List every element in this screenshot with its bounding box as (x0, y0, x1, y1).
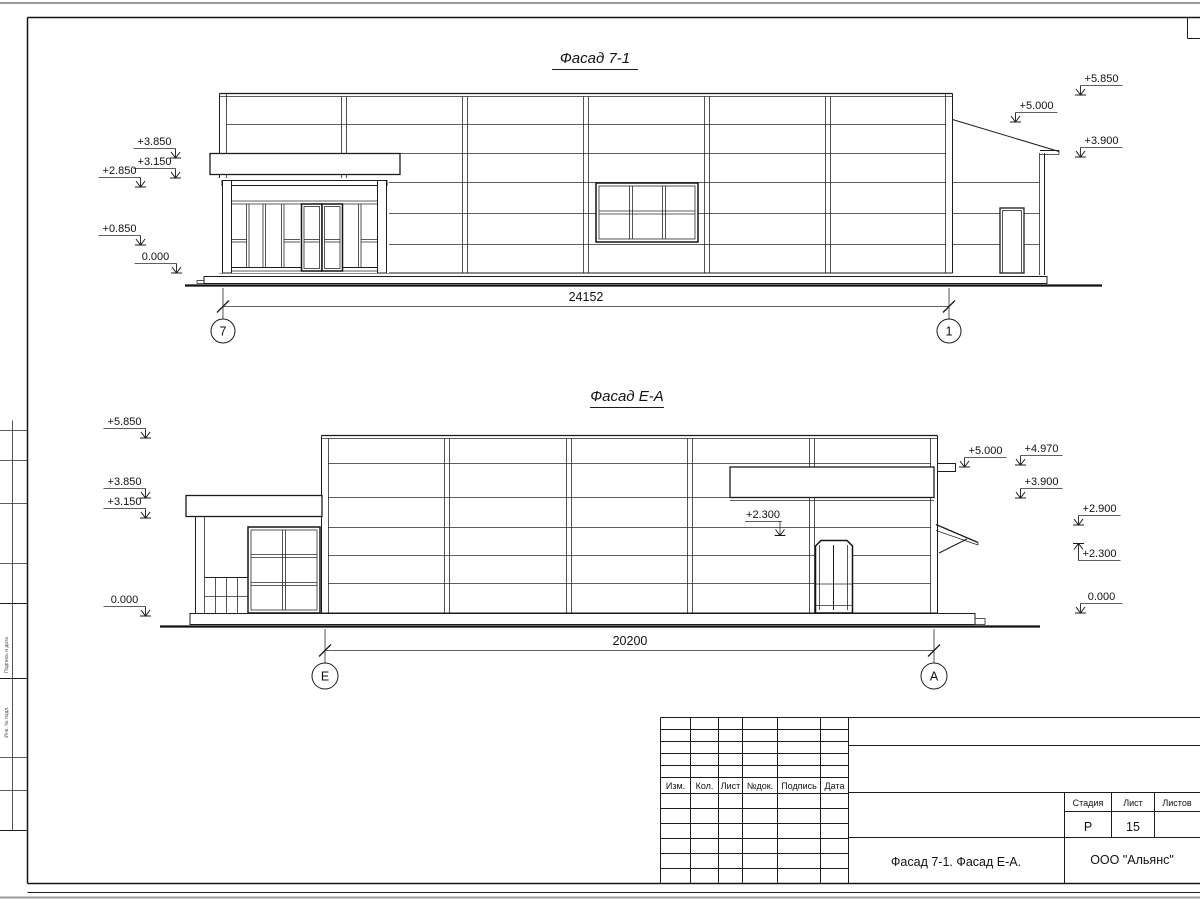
grid-bubble-label: 7 (220, 325, 227, 339)
facade-e-a: Фасад Е-А (160, 388, 1040, 689)
facade-top-window (596, 183, 698, 242)
level-mark: 0.000 (1075, 591, 1123, 613)
company-name: ООО "Альянс" (1090, 853, 1174, 867)
level-mark: +3.850 (104, 476, 152, 498)
facade-7-1: Фасад 7-1 (185, 50, 1102, 343)
dimension-bottom: 20200 (319, 629, 940, 663)
grid-bubble-label: 1 (946, 325, 953, 339)
left-annex (186, 496, 322, 614)
dimension-label: 24152 (569, 290, 604, 304)
level-mark: +5.850 (1075, 73, 1123, 95)
grid-bubble-label: Е (321, 670, 329, 684)
dimension-label: 20200 (613, 634, 648, 648)
sheet-frame (0, 3, 1200, 898)
grid-bubble-a: А (921, 663, 947, 689)
level-label: +2.850 (103, 165, 137, 177)
side-awning (936, 525, 978, 554)
level-mark: +3.150 (134, 156, 182, 178)
entrance-canopy (210, 154, 400, 175)
level-label: +3.900 (1025, 476, 1059, 488)
sheet-label: Лист (1123, 798, 1143, 808)
annex-window (248, 527, 320, 613)
level-mark: +2.900 (1073, 503, 1121, 525)
dimension-top: 24152 (217, 288, 955, 319)
sheets-label: Листов (1162, 798, 1191, 808)
title-block: Изм. Кол. Лист №док. Подпись Дата Стадия… (661, 718, 1200, 884)
main-stamp: Стадия Лист Листов Р 15 Фасад 7-1. Фасад… (849, 746, 1200, 884)
level-label: +3.900 (1085, 135, 1119, 147)
level-mark: +5.000 (1010, 100, 1058, 122)
level-mark: 0.000 (104, 594, 152, 616)
facade-7-1-title: Фасад 7-1 (560, 50, 630, 67)
level-mark: +3.150 (104, 496, 152, 518)
level-label: +5.850 (1085, 73, 1119, 85)
side-stamp: Подпись и дата Инв. № подл. (0, 421, 27, 831)
drawing-canvas: Подпись и дата Инв. № подл. Фасад 7-1 (0, 0, 1200, 900)
level-mark: +2.300 (1073, 544, 1121, 561)
col-data: Дата (825, 781, 845, 791)
level-label: +4.970 (1025, 443, 1059, 455)
col-ndok: №док. (747, 781, 773, 791)
level-label: 0.000 (142, 251, 170, 263)
right-annex (953, 120, 1060, 276)
level-label: +5.850 (108, 416, 142, 428)
col-podpis: Подпись (781, 781, 817, 791)
fascia-band (730, 464, 956, 501)
grid-bubble-label: А (930, 670, 939, 684)
drawing-sheet: Подпись и дата Инв. № подл. Фасад 7-1 (0, 0, 1200, 900)
level-label: +5.000 (1020, 100, 1054, 112)
level-mark: +5.000 (959, 445, 1007, 467)
col-izm: Изм. (666, 781, 685, 791)
annotation-label: +2.300 (746, 509, 780, 521)
level-label: +2.300 (1083, 548, 1117, 560)
side-stamp-label: Инв. № подл. (4, 706, 10, 737)
col-list: Лист (721, 781, 741, 791)
level-label: +0.850 (103, 223, 137, 235)
annex-railing (205, 578, 249, 614)
stage-label: Стадия (1073, 798, 1104, 808)
plinth-and-ground (185, 277, 1102, 286)
level-label: +2.900 (1083, 503, 1117, 515)
facade-bottom-door (816, 541, 853, 614)
sheet-value: 15 (1126, 820, 1140, 834)
level-mark: 0.000 (135, 251, 183, 273)
drawing-title: Фасад 7-1. Фасад Е-А. (891, 855, 1021, 869)
facade-e-a-title: Фасад Е-А (590, 388, 664, 405)
annex-door (1000, 208, 1024, 273)
level-mark: +3.900 (1075, 135, 1123, 157)
level-mark: +3.850 (134, 136, 182, 158)
side-stamp-label: Подпись и дата (4, 637, 10, 673)
col-kol: Кол. (696, 781, 714, 791)
level-label: 0.000 (111, 594, 139, 606)
level-label: +3.850 (108, 476, 142, 488)
grid-bubble-e: Е (312, 663, 338, 689)
level-label: +5.000 (969, 445, 1003, 457)
level-mark: +0.850 (99, 223, 147, 245)
level-mark: +3.900 (1015, 476, 1063, 498)
level-mark: +4.970 (1015, 443, 1063, 465)
level-mark: +5.850 (104, 416, 152, 438)
level-label: +3.150 (138, 156, 172, 168)
stage-value: Р (1084, 820, 1092, 834)
annotation-2300: +2.300 (745, 509, 786, 536)
grid-bubble-1: 1 (937, 319, 961, 343)
plinth-and-ground (160, 614, 1040, 627)
grid-bubble-7: 7 (211, 319, 235, 343)
level-label: +3.150 (108, 496, 142, 508)
entrance-door (302, 204, 343, 271)
level-label: 0.000 (1088, 591, 1116, 603)
level-label: +3.850 (138, 136, 172, 148)
entrance-vestibule (219, 178, 389, 273)
